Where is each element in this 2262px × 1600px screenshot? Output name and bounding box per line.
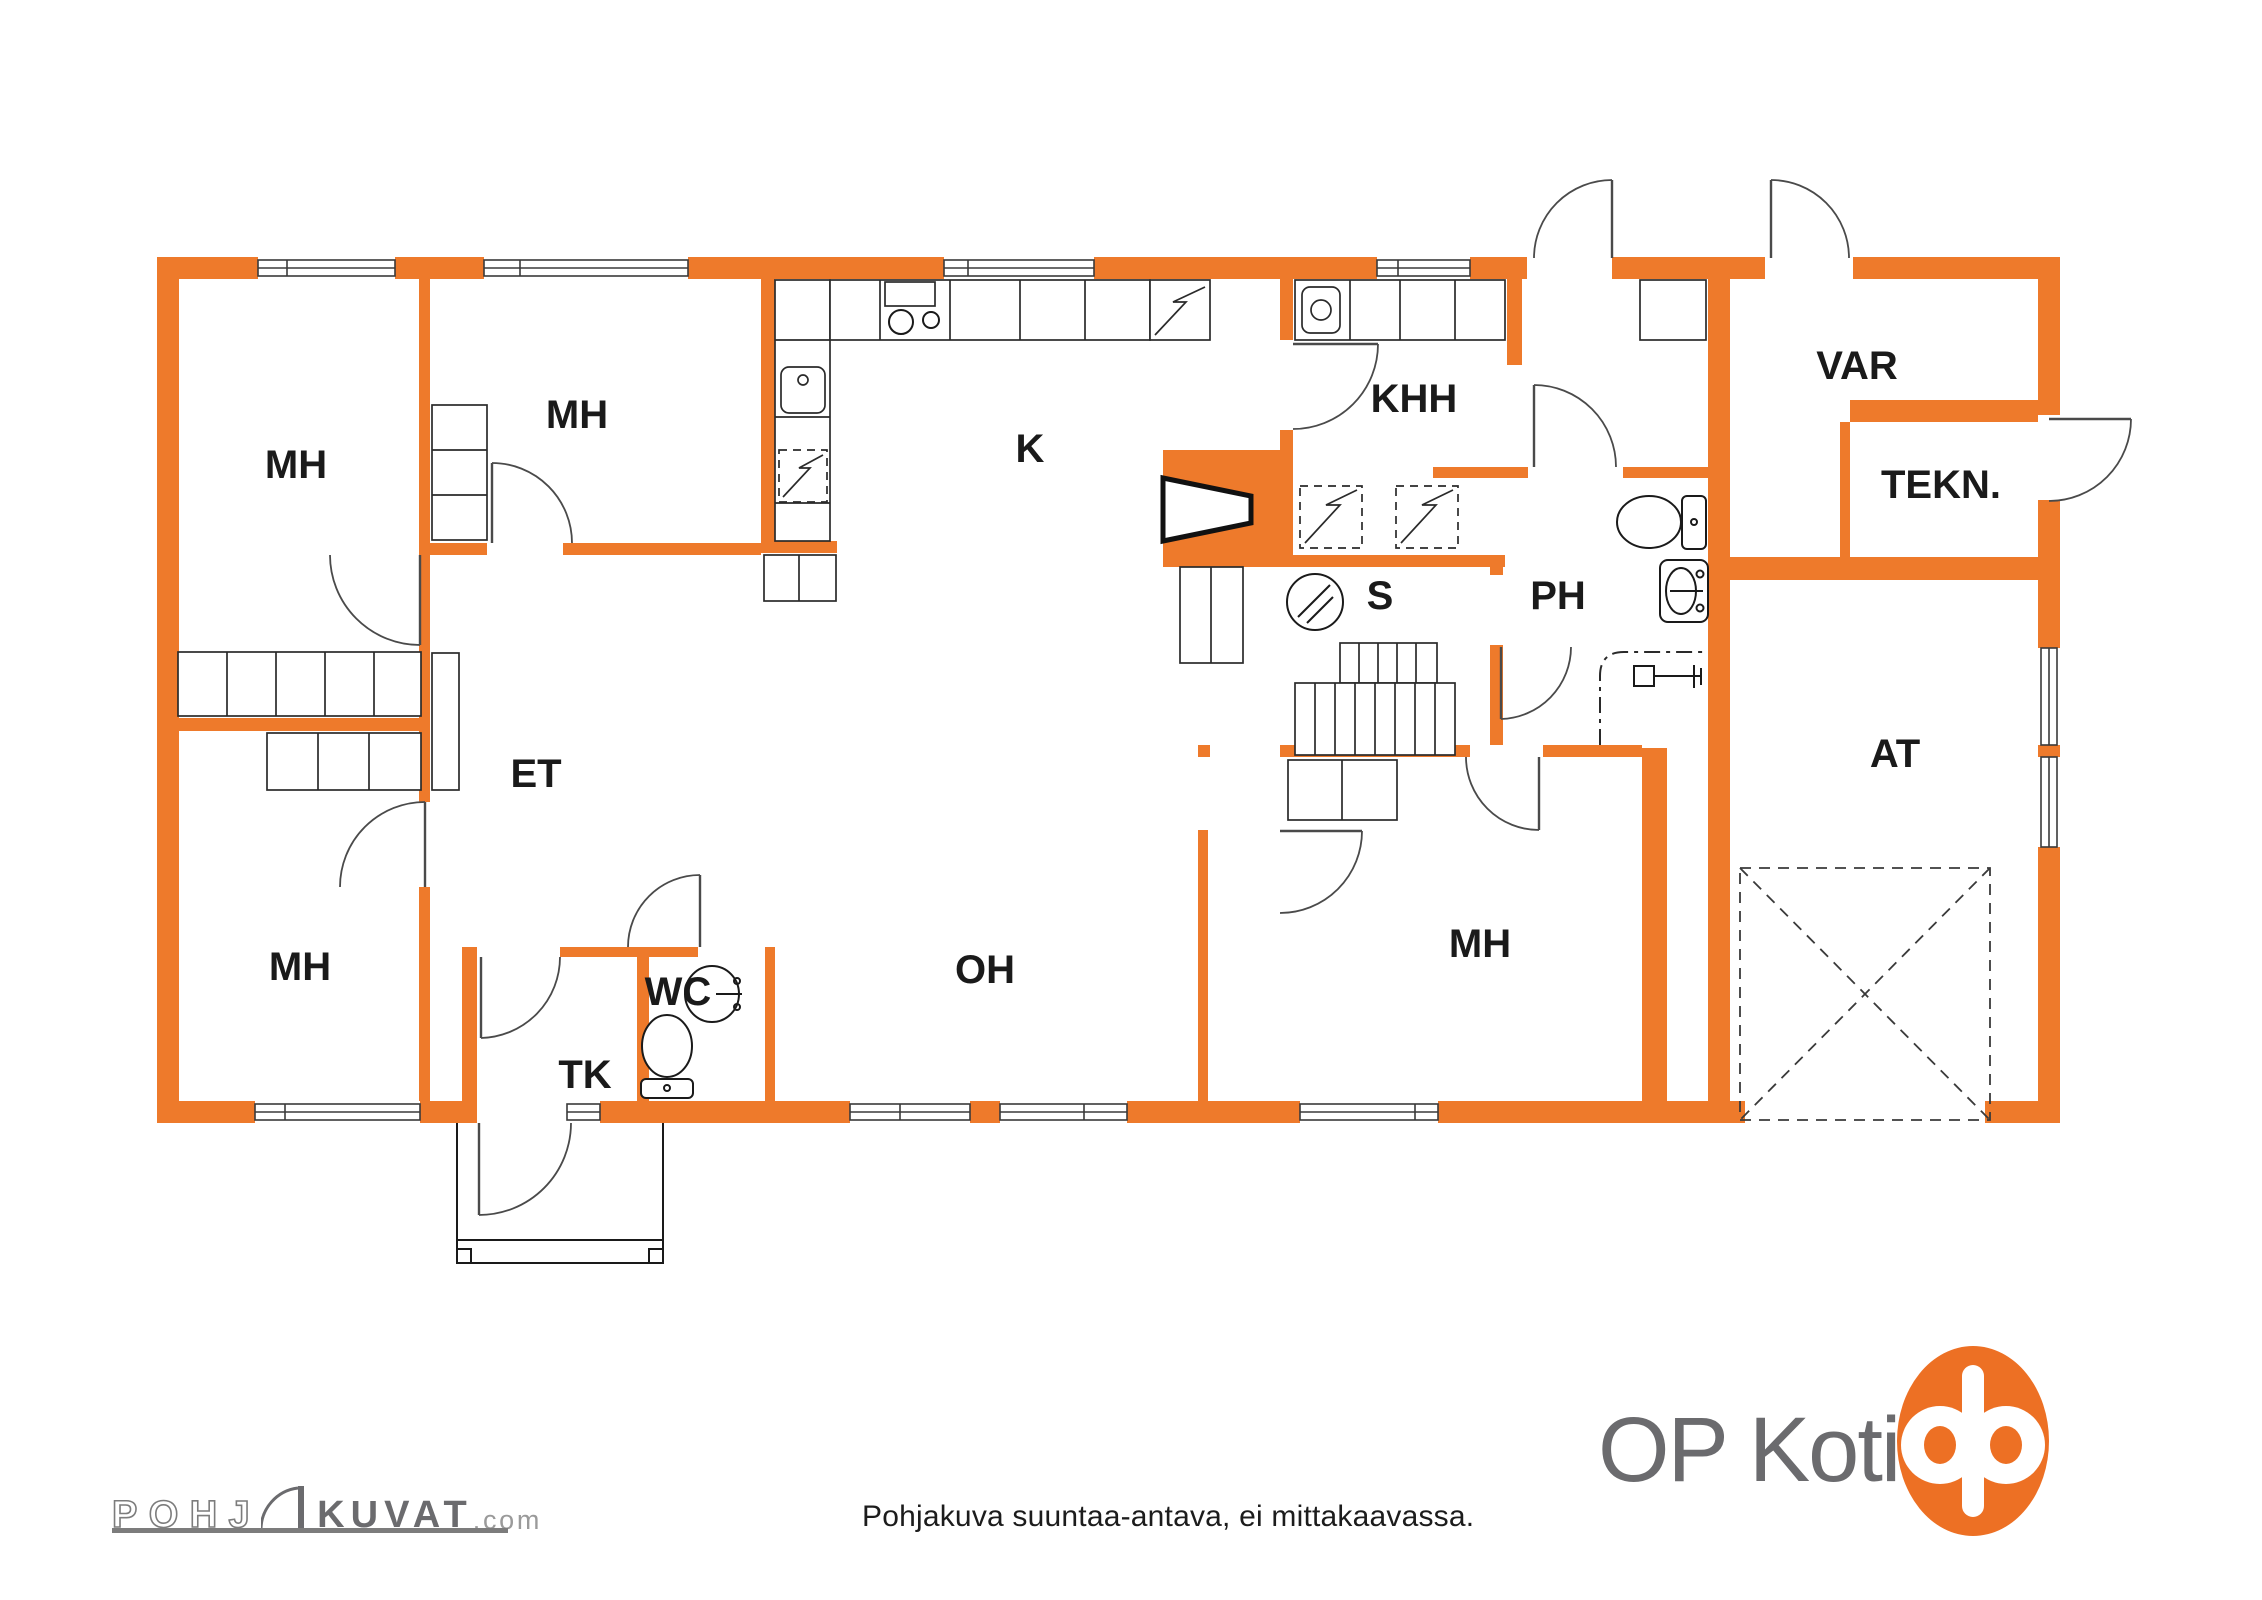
toilet-icon bbox=[641, 1015, 693, 1098]
sauna-stove-icon bbox=[1287, 574, 1343, 630]
closet bbox=[432, 653, 459, 790]
room-label-mh-4: MH bbox=[1449, 922, 1511, 966]
sink-icon bbox=[1302, 287, 1340, 333]
room-label-k: K bbox=[1016, 427, 1045, 471]
window-icon bbox=[1000, 1101, 1127, 1123]
shower-icon bbox=[1600, 652, 1706, 745]
pohjakuvat-logo: POHJ KUVAT .com bbox=[112, 1484, 542, 1534]
room-label-s: S bbox=[1367, 574, 1394, 618]
room-label-khh: KHH bbox=[1371, 377, 1458, 421]
window-icon bbox=[944, 257, 1094, 279]
kitchen-counter bbox=[830, 280, 1210, 340]
door-icon bbox=[1280, 831, 1362, 913]
window-icon bbox=[1300, 1101, 1438, 1123]
window-icon bbox=[1377, 257, 1470, 279]
op-koti-brand-text: OP Koti bbox=[1598, 1398, 1899, 1503]
closet bbox=[432, 405, 487, 540]
closet bbox=[1180, 567, 1243, 663]
utility-counter bbox=[1295, 280, 1505, 340]
window-icon bbox=[2038, 757, 2060, 847]
door-icon bbox=[340, 802, 425, 887]
door-icon bbox=[2049, 419, 2131, 501]
room-label-mh-1: MH bbox=[265, 443, 327, 487]
porch bbox=[457, 1123, 663, 1263]
room-label-var: VAR bbox=[1816, 344, 1898, 388]
window-icon bbox=[2038, 648, 2060, 745]
door-icon bbox=[261, 1484, 313, 1534]
sink-icon bbox=[781, 367, 825, 413]
window-icon bbox=[567, 1101, 600, 1123]
door-icon bbox=[330, 555, 420, 645]
room-label-tk: TK bbox=[558, 1053, 611, 1097]
washing-machine-icon bbox=[1300, 486, 1362, 548]
toilet-icon bbox=[1617, 496, 1706, 549]
closet bbox=[1288, 760, 1397, 820]
closet bbox=[267, 733, 421, 790]
room-labels: MH MH K KHH VAR TEKN. S PH ET WC TK OH M… bbox=[265, 344, 2001, 1097]
room-label-et: ET bbox=[510, 752, 561, 796]
room-label-at: AT bbox=[1870, 732, 1920, 776]
window-icon bbox=[255, 1101, 420, 1123]
door-icon bbox=[492, 463, 572, 543]
disclaimer-text: Pohjakuva suuntaa-antava, ei mittakaavas… bbox=[862, 1500, 1474, 1534]
room-label-mh-3: MH bbox=[269, 945, 331, 989]
door-icon bbox=[479, 1123, 571, 1215]
door-icon bbox=[1534, 180, 1612, 258]
window-icon bbox=[484, 257, 688, 279]
room-label-wc: WC bbox=[645, 970, 712, 1014]
window-icon bbox=[850, 1101, 970, 1123]
sauna-benches bbox=[1295, 643, 1455, 755]
op-logo-icon bbox=[1895, 1344, 2051, 1538]
kitchen-counter bbox=[775, 280, 830, 541]
sink-icon bbox=[1660, 560, 1708, 622]
door-icon bbox=[1293, 344, 1378, 429]
garage-door-icon bbox=[1740, 868, 1990, 1120]
door-icon bbox=[481, 957, 560, 1038]
door-icon bbox=[1534, 385, 1616, 467]
door-icon bbox=[1771, 180, 1849, 258]
fridge-icon bbox=[1150, 280, 1210, 340]
closet bbox=[1640, 280, 1706, 340]
door-icon bbox=[1466, 757, 1539, 830]
door-icon bbox=[628, 875, 700, 947]
pohjakuvat-logo-baseline bbox=[112, 1528, 508, 1533]
windows bbox=[255, 257, 2060, 1123]
window-icon bbox=[258, 257, 395, 279]
room-label-ph: PH bbox=[1530, 574, 1586, 618]
room-label-oh: OH bbox=[955, 948, 1015, 992]
closet bbox=[764, 555, 836, 601]
door-icon bbox=[1501, 647, 1571, 719]
room-label-tekn: TEKN. bbox=[1881, 463, 2001, 507]
closet bbox=[178, 652, 421, 716]
washing-machine-icon bbox=[1396, 486, 1458, 548]
floorplan-page: MH MH K KHH VAR TEKN. S PH ET WC TK OH M… bbox=[0, 0, 2262, 1600]
room-label-mh-2: MH bbox=[546, 393, 608, 437]
